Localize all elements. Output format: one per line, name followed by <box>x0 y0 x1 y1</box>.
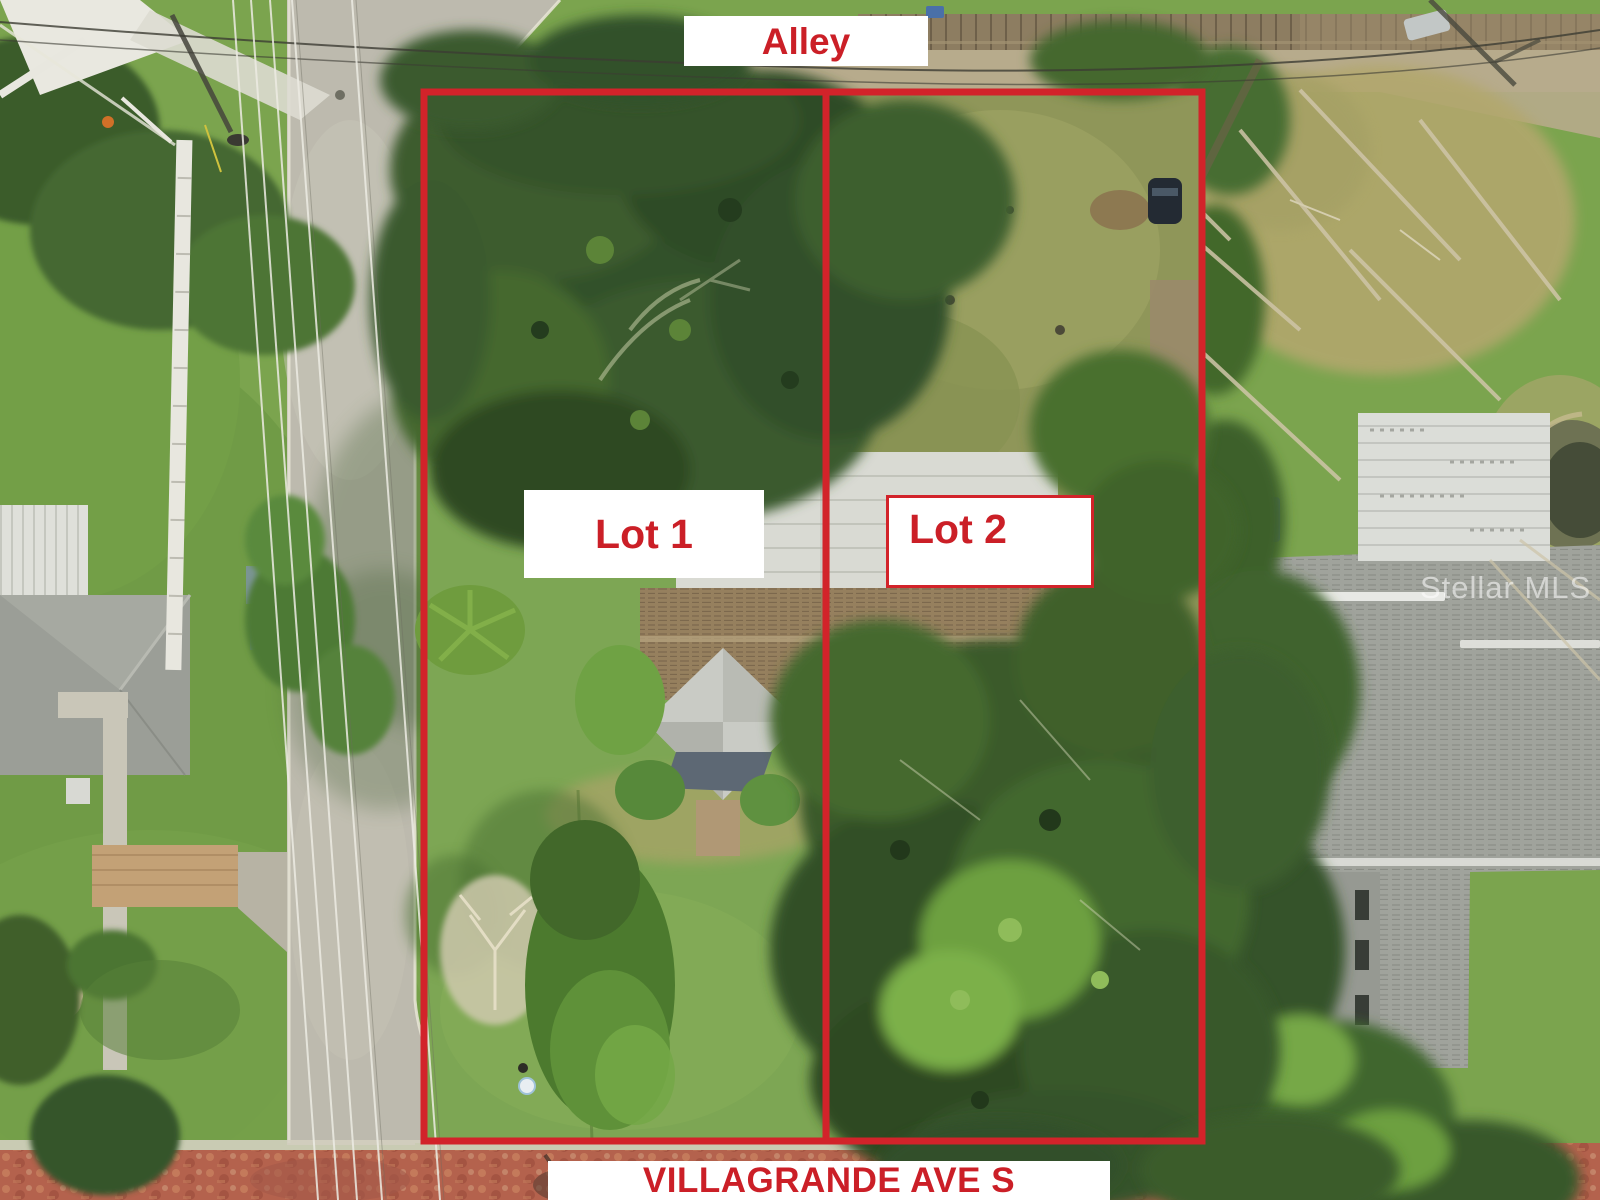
metal-roof <box>1358 413 1550 561</box>
aerial-photo: Alley Lot 1 Lot 2 VILLAGRANDE AVE S Stel… <box>0 0 1600 1200</box>
aerial-photo-scene <box>0 0 1600 1200</box>
lot2-label-box: Lot 2 <box>886 495 1094 588</box>
lot1-label: Lot 1 <box>595 514 693 555</box>
street-label: VILLAGRANDE AVE S <box>643 1163 1015 1198</box>
lot1-label-box: Lot 1 <box>524 490 764 578</box>
alley-label: Alley <box>762 23 850 60</box>
lot2-label: Lot 2 <box>909 509 1007 550</box>
parked-car <box>1148 178 1182 224</box>
street-label-box: VILLAGRANDE AVE S <box>548 1161 1110 1200</box>
alley-label-box: Alley <box>684 16 928 66</box>
stellar-mls-watermark: Stellar MLS <box>1420 570 1591 606</box>
